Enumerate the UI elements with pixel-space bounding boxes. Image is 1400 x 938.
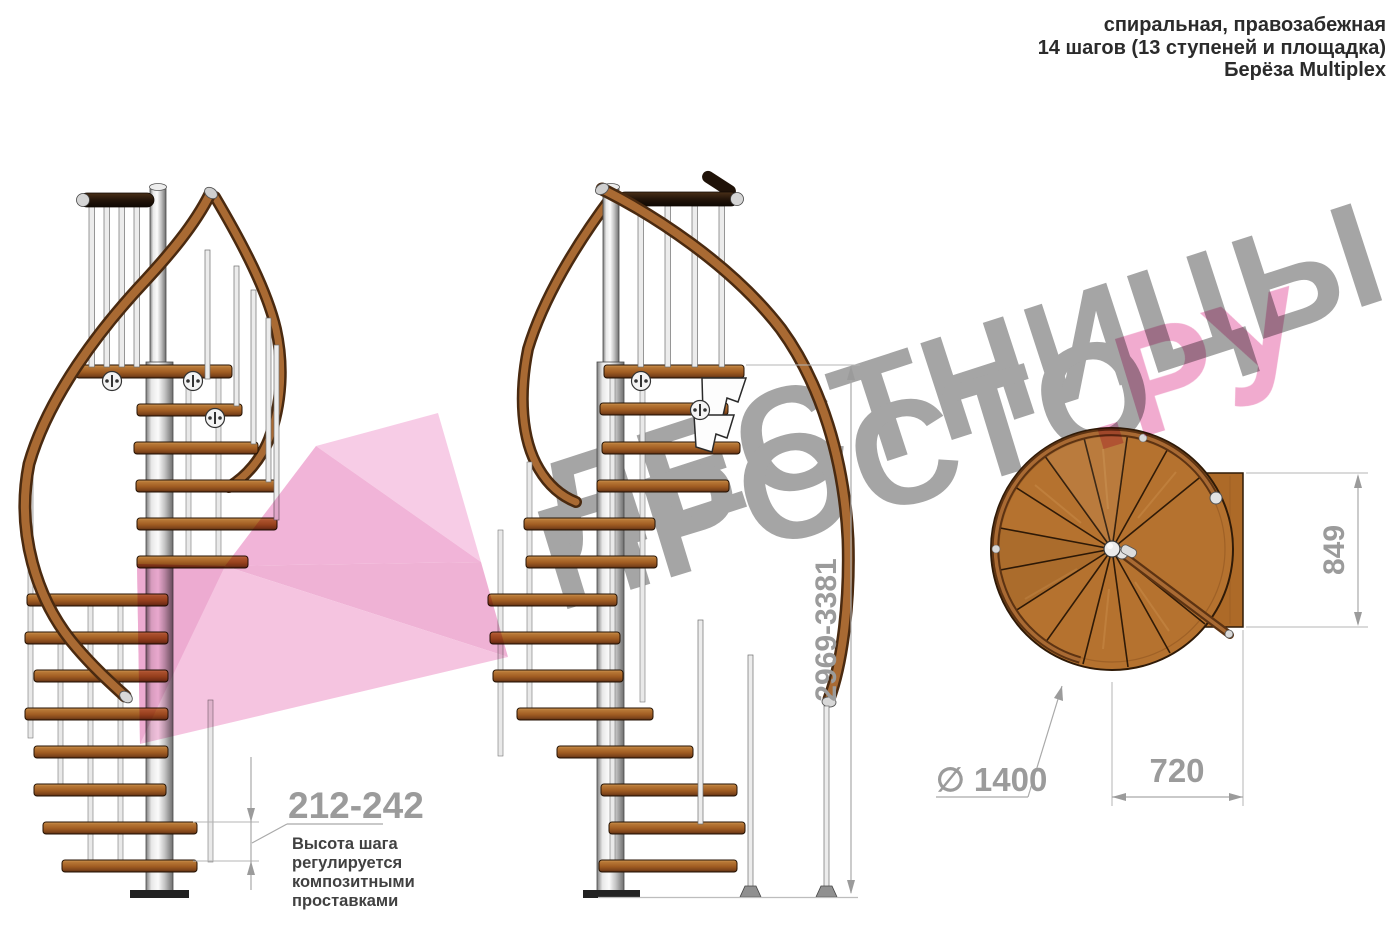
header-line-3: Берёза Multiplex	[1224, 59, 1386, 81]
dim-diameter: ∅ 1400	[936, 686, 1063, 798]
step-height-value: 212-242	[288, 785, 424, 826]
step-height-note-4: проставками	[292, 892, 398, 910]
base-flange	[130, 890, 189, 898]
dim-step-height: 212-242 Высота шага регулируется компози…	[193, 757, 424, 910]
base-flange	[583, 890, 640, 898]
plan-width-value: 720	[1149, 752, 1204, 789]
drawing-sheet: ЛЕСТНИЦЫ ПРОСТО	[0, 0, 1400, 938]
step-height-note-1: Высота шага	[292, 835, 398, 853]
header-line-1: спиральная, правозабежная	[1104, 14, 1386, 36]
step-height-note-3: композитными	[292, 873, 415, 891]
left-elevation-view	[25, 184, 281, 899]
total-height-value: 2969-3381	[810, 558, 843, 701]
plan-depth-value: 849	[1318, 525, 1351, 575]
top-rail	[77, 193, 155, 207]
drawing-canvas: ЛЕСТНИЦЫ ПРОСТО	[0, 0, 1400, 938]
header-line-2: 14 шагов (13 ступеней и площадка)	[1038, 37, 1386, 59]
baluster-feet	[740, 886, 837, 897]
step-height-note-2: регулируется	[292, 854, 402, 872]
dim-plan-depth: 849	[1246, 473, 1368, 627]
header-info: спиральная, правозабежная 14 шагов (13 с…	[1038, 14, 1386, 81]
diameter-value: ∅ 1400	[936, 761, 1047, 798]
